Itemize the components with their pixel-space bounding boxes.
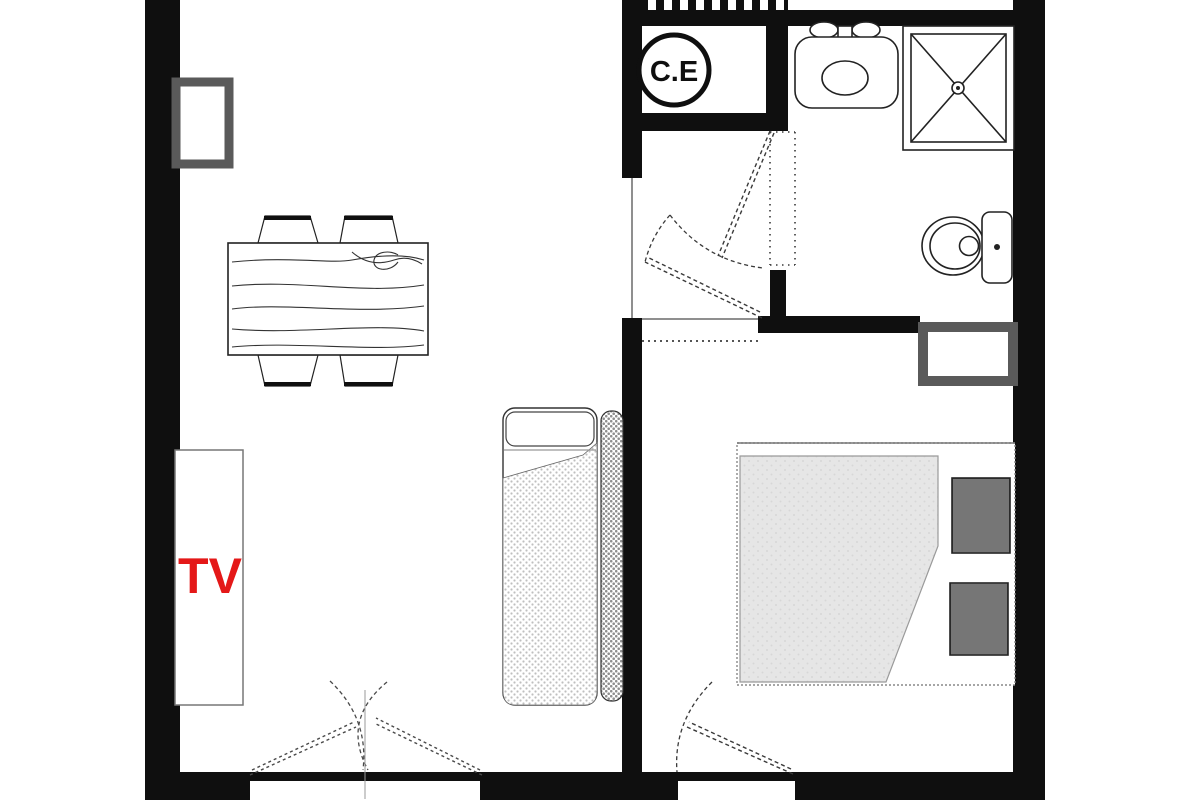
window-icon-left [176, 82, 229, 164]
double-bed-icon [737, 443, 1015, 685]
sink-drain [822, 61, 868, 95]
chair-icon-top-left [258, 216, 318, 243]
bedroom-door-leaf [687, 722, 793, 774]
wall-bathroom-west [766, 10, 788, 131]
vent-grille-icon [630, 0, 788, 11]
bedroom-door-arc [677, 682, 712, 772]
dining-set [228, 216, 428, 386]
door-swing-icon-bedroom [677, 682, 793, 774]
sink-knob-right [852, 22, 880, 38]
floor-plan: C.E [0, 0, 1200, 800]
french-door-leaf-left [250, 722, 356, 775]
hall-door-arc [645, 215, 670, 262]
window-icon-bedroom [923, 327, 1013, 381]
bed-pillow-bottom [950, 583, 1008, 655]
sink-knob-left [810, 22, 838, 38]
water-heater-label: C.E [650, 56, 698, 88]
shower-drain-dot [956, 86, 960, 90]
wall-closet-left [622, 0, 642, 178]
sink-icon [795, 22, 898, 108]
daybed-icon [503, 408, 623, 705]
water-heater-icon: C.E [639, 35, 709, 105]
wall-right [1013, 0, 1045, 800]
daybed-mattress [503, 443, 597, 705]
daybed-pillow [506, 412, 594, 446]
chair-icon-bottom-right [340, 355, 398, 386]
wall-bathroom-west-stub [770, 270, 786, 322]
door-swing-icon-bathroom [670, 131, 795, 268]
chair-icon-top-right [340, 216, 398, 243]
toilet-drain [960, 237, 979, 256]
tv-label: TV [178, 548, 243, 604]
wall-closet-bottom [622, 113, 784, 131]
bathroom-door-open-position [770, 132, 795, 265]
toilet-icon [922, 212, 1012, 283]
wall-room-divider [622, 318, 642, 774]
bathroom-door-arc [670, 215, 763, 268]
tv-stand: TV [175, 450, 243, 705]
bed-pillow-top [952, 478, 1010, 553]
toilet-flush-button [994, 244, 1000, 250]
floor-plan-drawing: C.E [0, 0, 1200, 800]
french-door-leaf-right [374, 718, 482, 775]
hall-door-leaf [645, 257, 762, 318]
threshold-bedroom-door [678, 781, 795, 800]
chair-icon-bottom-left [258, 355, 318, 386]
shower-icon [903, 26, 1014, 150]
daybed-bolster [601, 411, 623, 701]
wall-bathroom-south [758, 316, 920, 333]
door-swing-icon-hall [645, 215, 762, 318]
bathroom-door-leaf [718, 131, 774, 258]
french-door-arc-right [358, 682, 387, 770]
